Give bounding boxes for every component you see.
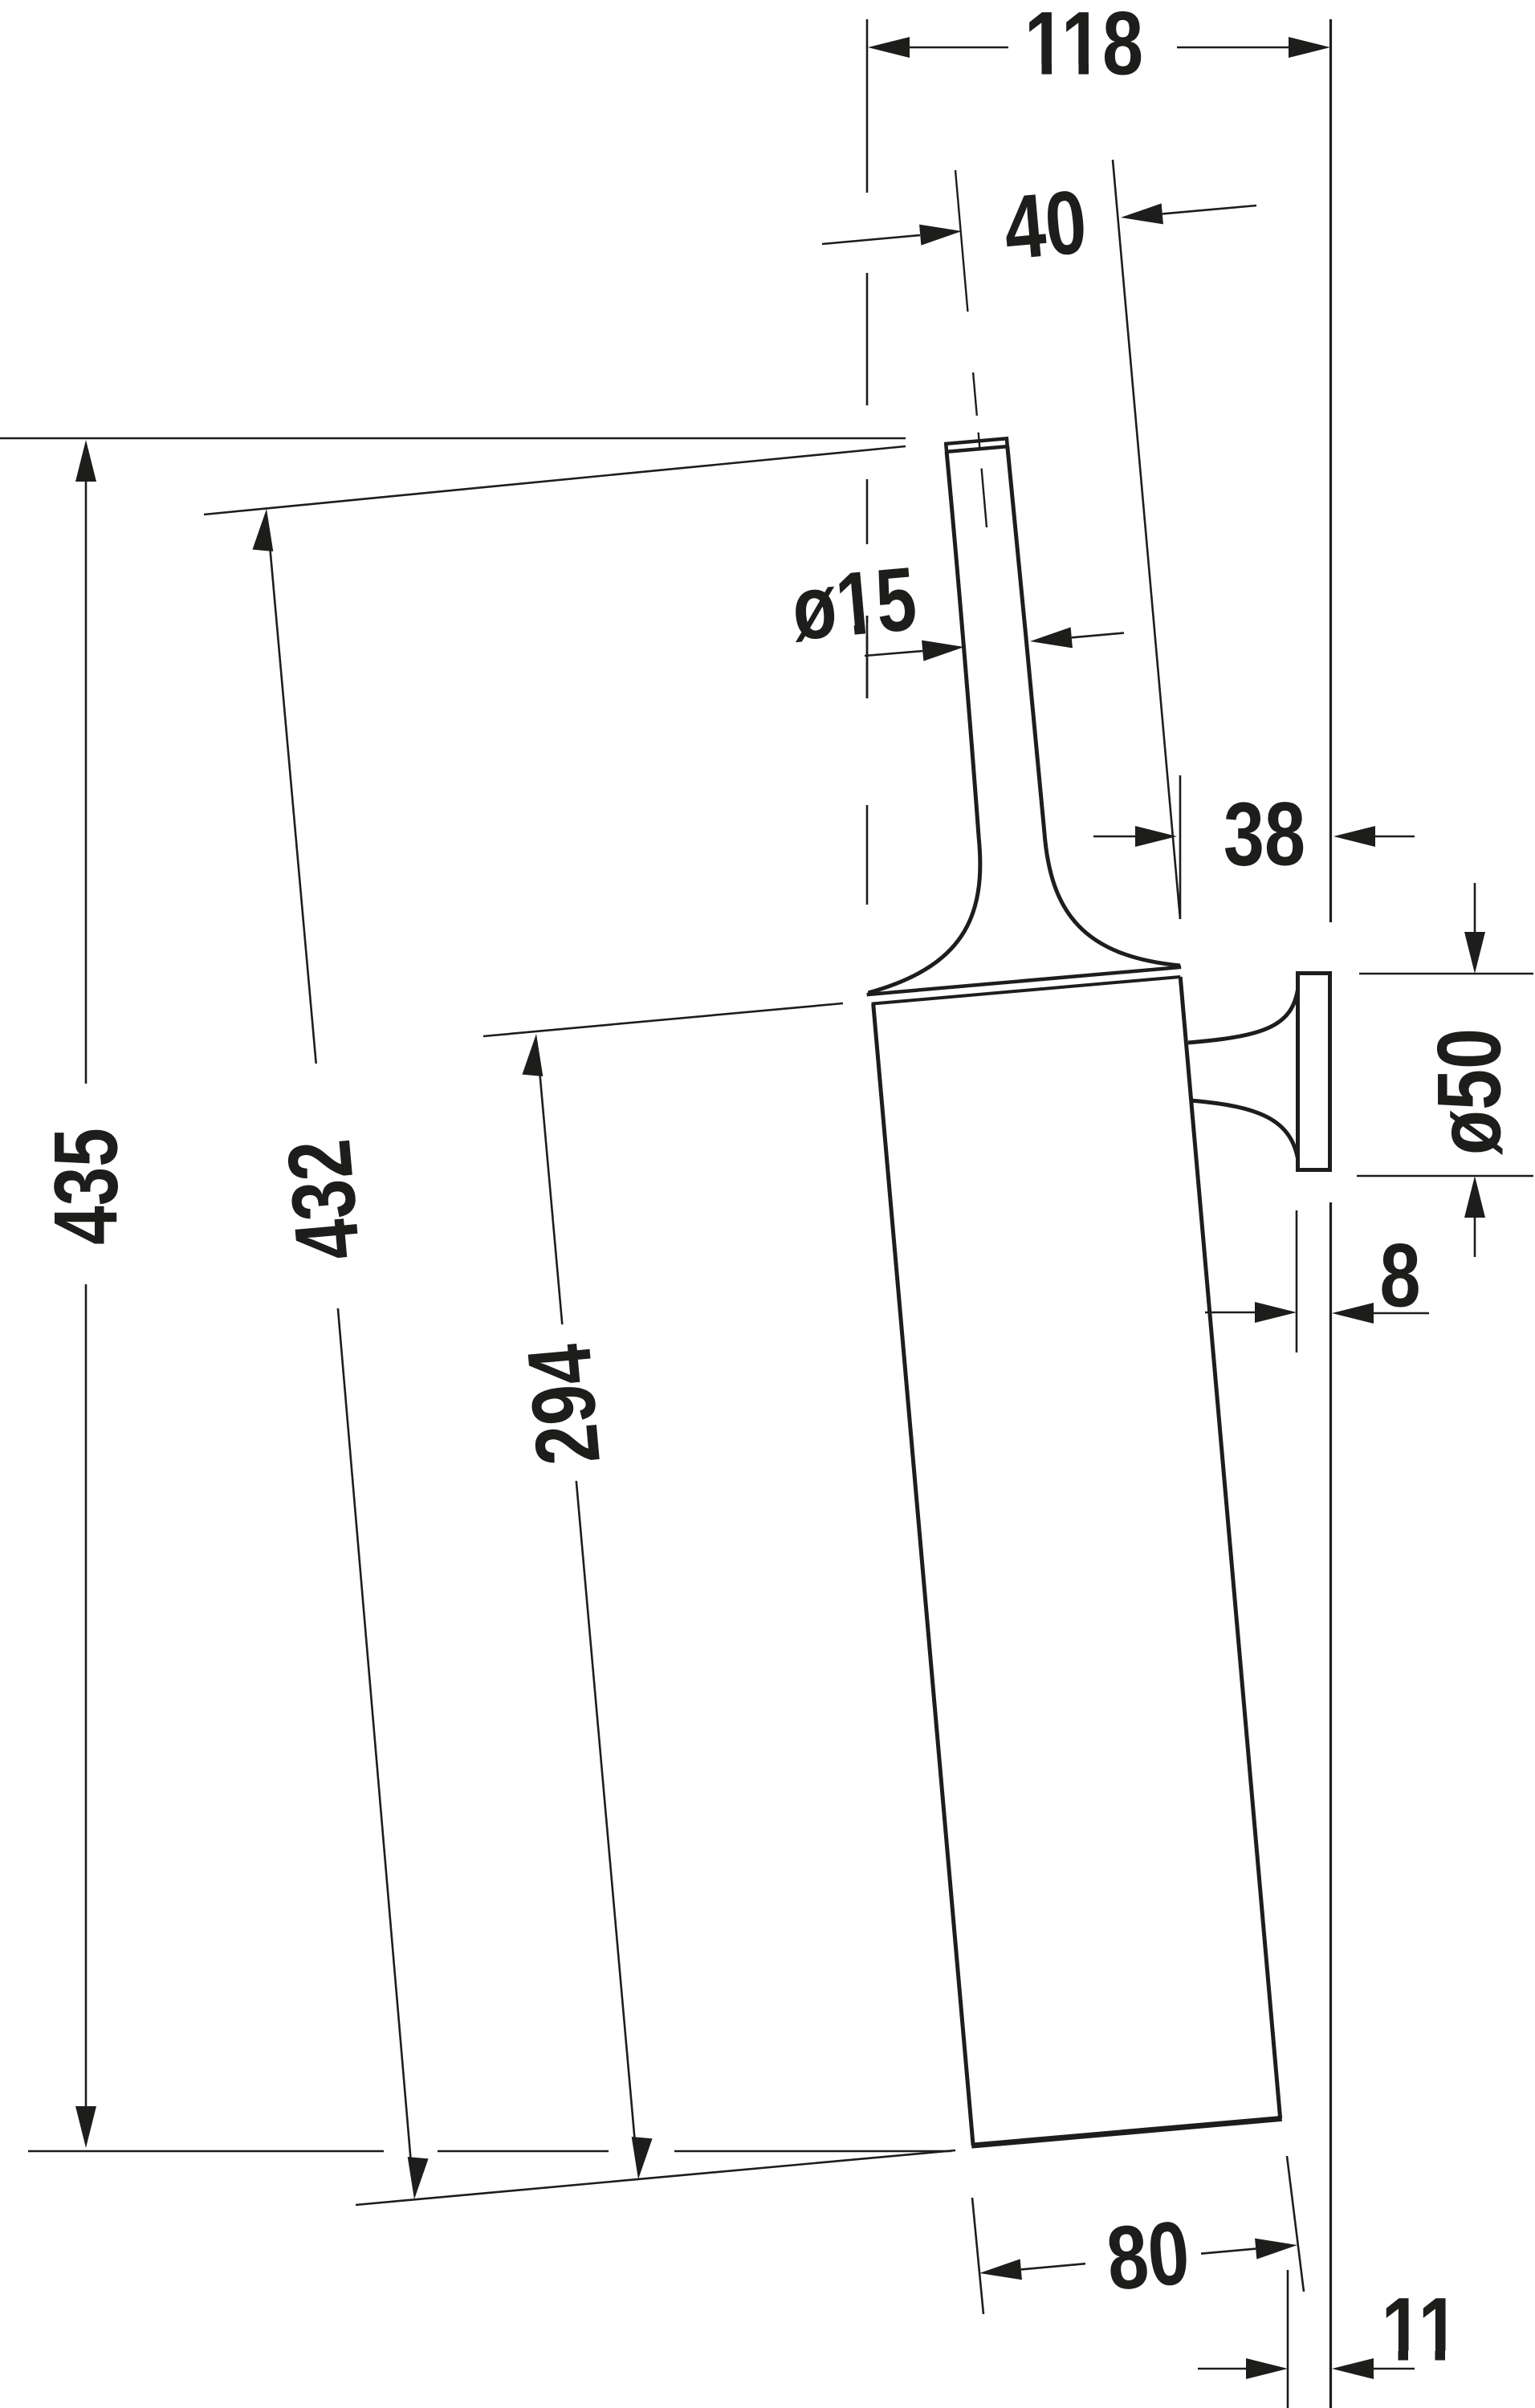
svg-text:ø50: ø50: [1419, 1028, 1520, 1155]
svg-text:ø15: ø15: [788, 548, 921, 659]
svg-text:11: 11: [1381, 2279, 1459, 2380]
svg-text:80: 80: [1103, 2202, 1194, 2309]
svg-text:40: 40: [1000, 171, 1091, 279]
svg-text:435: 435: [36, 1128, 136, 1245]
svg-text:432: 432: [269, 1136, 380, 1264]
svg-text:8: 8: [1379, 1225, 1420, 1326]
svg-text:294: 294: [509, 1340, 620, 1469]
svg-text:38: 38: [1224, 783, 1305, 885]
svg-text:118: 118: [1024, 0, 1143, 94]
